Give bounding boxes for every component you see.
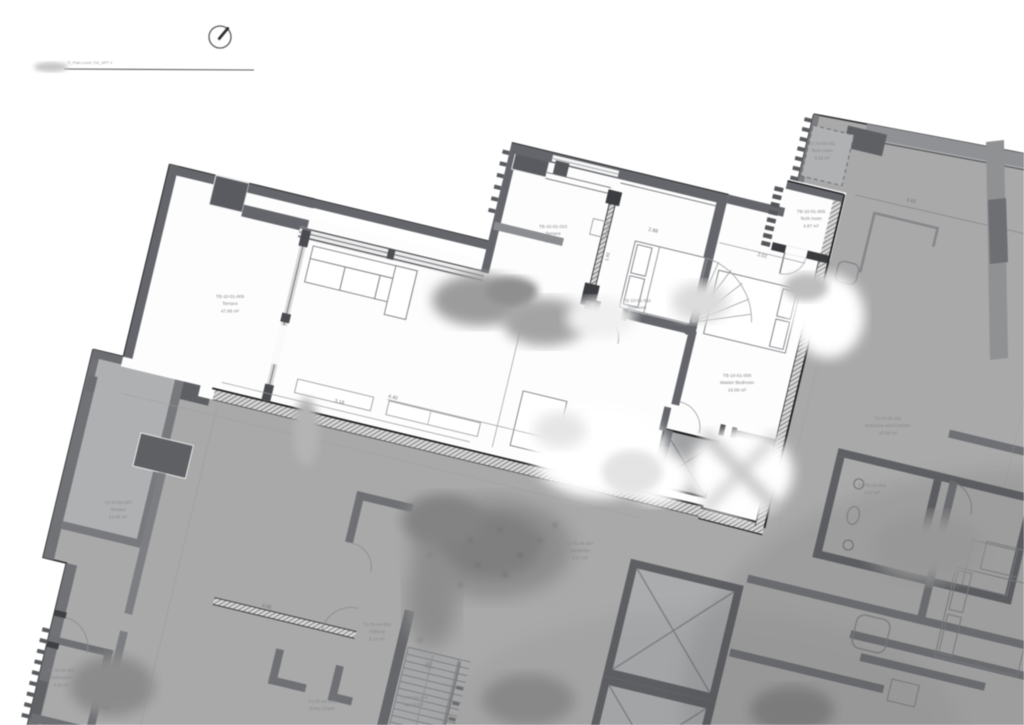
svg-text:13.06 m²: 13.06 m² — [109, 514, 128, 519]
svg-text:16.06 m²: 16.06 m² — [728, 387, 747, 392]
svg-text:TB-10-01-010: TB-10-01-010 — [539, 224, 568, 229]
svg-text:Entry Closet: Entry Closet — [309, 706, 335, 711]
svg-text:TJ-70-04-002: TJ-70-04-002 — [363, 622, 391, 627]
svg-text:TJ-70-04-005: TJ-70-04-005 — [47, 668, 75, 673]
svg-text:Master Bedroom: Master Bedroom — [720, 380, 754, 385]
svg-text:4.57 m²: 4.57 m² — [572, 555, 588, 560]
svg-text:Terrace: Terrace — [222, 301, 238, 306]
svg-text:9.73 m²: 9.73 m² — [545, 238, 561, 243]
svg-text:TJ-70-05-004: TJ-70-05-004 — [858, 483, 886, 488]
svg-text:TB-10-01-009: TB-10-01-009 — [216, 294, 245, 299]
svg-text:TB-10-01-006: TB-10-01-006 — [723, 373, 752, 378]
svg-text:3.19 m²: 3.19 m² — [814, 155, 830, 160]
svg-text:5.23 m²: 5.23 m² — [369, 636, 385, 641]
svg-text:Hallway: Hallway — [369, 629, 386, 634]
svg-text:TJ-70-04-003: TJ-70-04-003 — [308, 699, 336, 704]
svg-text:4.87 m²: 4.87 m² — [803, 223, 819, 228]
svg-text:TB-10-01-011: TB-10-01-011 — [623, 298, 651, 303]
svg-text:Entrance and Corridor: Entrance and Corridor — [865, 423, 911, 428]
svg-text:Tech room: Tech room — [811, 148, 833, 153]
svg-text:47.66 m²: 47.66 m² — [221, 308, 240, 313]
svg-text:Tech room: Tech room — [800, 216, 822, 221]
svg-text:Wardrobe: Wardrobe — [570, 548, 590, 553]
svg-text:3.92 m²: 3.92 m² — [53, 682, 69, 687]
svg-text:TJ-70-05-001: TJ-70-05-001 — [874, 416, 902, 421]
svg-text:TI_Plan Level 710_APT 1: TI_Plan Level 710_APT 1 — [67, 60, 113, 65]
svg-text:Terrace: Terrace — [110, 507, 126, 512]
svg-text:TJ-70-05-011: TJ-70-05-011 — [808, 141, 836, 146]
svg-text:Terrace: Terrace — [545, 231, 561, 236]
svg-text:TB-10-01-005: TB-10-01-005 — [797, 209, 826, 214]
svg-text:16.50 m²: 16.50 m² — [879, 430, 898, 435]
svg-text:Bathroom: Bathroom — [51, 675, 71, 680]
svg-text:TJ-70-04-007: TJ-70-04-007 — [104, 500, 132, 505]
svg-text:Wardrobe: Wardrobe — [404, 702, 424, 707]
svg-text:TJ-70-04-004: TJ-70-04-004 — [400, 695, 428, 700]
